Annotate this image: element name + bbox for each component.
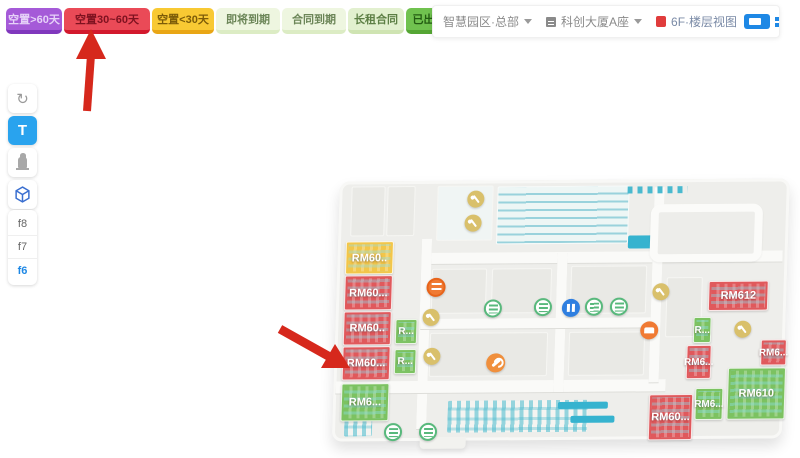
conference-area [496,186,630,245]
floor-plate: RM60.. RM60... RM60.. RM60... RM6... R..… [321,176,795,457]
room[interactable]: RM60.. [343,311,392,345]
room-label: RM60.. [349,322,385,334]
room-label: RM60... [349,287,388,299]
room-block [570,265,648,314]
park-select[interactable]: 智慧园区·总部 [443,13,532,30]
cube-3d-icon [14,186,31,203]
annotation-arrow-legend [60,25,112,117]
room-label: RM6... [759,347,789,358]
location-pin-icon [656,16,666,27]
view-3d-button[interactable] [8,180,37,209]
room[interactable]: RM60... [342,346,391,380]
floor-item-f7[interactable]: f7 [8,236,37,259]
legend-button-vacant-30-60[interactable]: 空置30~60天 [64,8,150,34]
fire-hydrant-icon [18,157,27,168]
room-label: RM60... [651,411,690,423]
building-icon [546,17,556,27]
escalator [558,402,608,409]
room-block [350,186,386,236]
floor-switcher: f8 f7 f6 [8,210,37,285]
floor-link-label: 6F·楼层视图 [671,13,737,30]
chevron-down-icon [634,19,642,24]
room-label: RM6... [684,356,714,367]
room[interactable]: RM60... [344,275,393,310]
room-label: RM612 [720,290,756,302]
room-label: RM6... [694,398,724,409]
legend-button-long-lease[interactable]: 长租合同 [348,8,404,34]
room[interactable]: R... [693,317,712,343]
room-block [568,331,645,376]
room-block [386,186,416,236]
refresh-icon: ↻ [16,90,29,108]
floor-item-f8[interactable]: f8 [8,213,37,236]
building-select-label: 科创大厦A座 [561,13,629,30]
hydrant-button[interactable] [8,148,37,177]
floor-link[interactable]: 6F·楼层视图 [656,13,737,30]
room[interactable]: RM60... [648,394,693,440]
room-label: RM6... [349,396,382,408]
text-tool-button[interactable]: T [8,116,37,145]
chair-row [628,186,688,193]
escalator [570,416,614,423]
text-tool-icon: T [18,122,27,139]
legend-button-contract-expire[interactable]: 合同到期 [282,8,346,34]
room[interactable]: RM610 [726,367,786,419]
room-label: R... [397,356,413,367]
legend-button-vacant-under-30[interactable]: 空置<30天 [152,8,214,34]
building-select[interactable]: 科创大厦A座 [546,13,642,30]
chevron-down-icon [524,19,532,24]
floor-plan-map[interactable]: RM60.. RM60... RM60.. RM60... RM6... R..… [330,178,795,456]
room[interactable]: R... [394,349,417,374]
room[interactable]: R... [395,319,418,344]
room[interactable]: RM612 [708,281,769,311]
more-options-icon [775,17,779,27]
room[interactable]: RM6... [340,383,389,421]
room[interactable]: RM6... [694,388,723,420]
room-label: R... [398,326,414,337]
park-select-label: 智慧园区·总部 [443,13,519,30]
room[interactable]: RM6... [760,339,787,365]
room[interactable]: RM60.. [345,241,394,274]
legend-bar: 空置>60天 空置30~60天 空置<30天 即将到期 合同到期 长租合同 已出… [6,8,452,34]
room[interactable]: RM6... [686,345,712,379]
top-toolbar: 智慧园区·总部 科创大厦A座 6F·楼层视图 [432,5,780,38]
room-label: R... [694,324,710,335]
floor-item-f6[interactable]: f6 [8,259,37,282]
room-label: RM610 [738,387,774,399]
corridor [420,317,650,329]
room-label: RM60... [347,357,386,369]
view-toggle-button[interactable] [744,14,779,29]
legend-button-expiring-soon[interactable]: 即将到期 [216,8,280,34]
room-block [436,185,494,240]
refresh-button[interactable]: ↻ [8,84,37,113]
large-room [649,204,763,263]
room-label: RM60.. [352,252,388,264]
legend-button-vacant-60plus[interactable]: 空置>60天 [6,8,62,34]
view-toggle-icon [744,14,770,29]
